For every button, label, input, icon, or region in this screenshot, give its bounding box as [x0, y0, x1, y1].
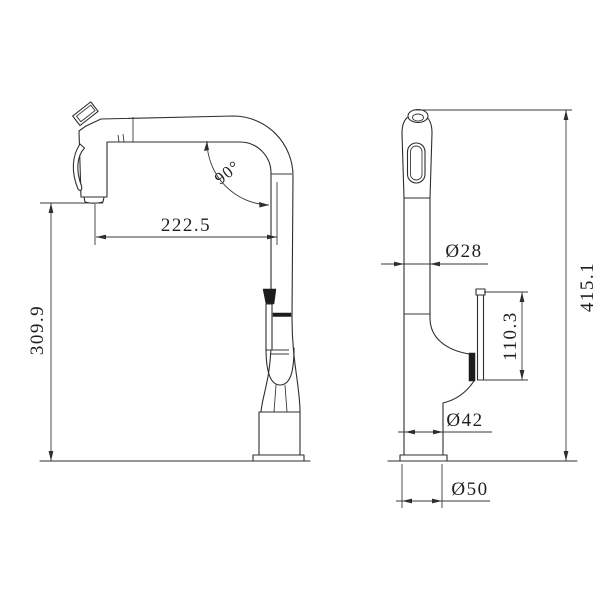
dim-handle-110-3: 110.3 — [477, 292, 528, 380]
spray-outlet-window-inner — [411, 146, 423, 180]
technical-drawing-sheet: 309.9 222.5 90° Ø28 415.1 110. — [0, 0, 600, 600]
side-view — [40, 102, 310, 461]
spray-head-foot — [84, 197, 104, 203]
latch-mark-1 — [118, 135, 119, 142]
base-cylinder-side — [259, 412, 300, 455]
spout-arm-inner — [108, 142, 271, 412]
bulb-silhouette-2 — [285, 385, 287, 412]
handle-rod-side — [266, 304, 272, 350]
dim-dia-28: Ø28 — [381, 241, 488, 266]
dim-label-415-1: 415.1 — [577, 262, 598, 312]
spray-trigger — [73, 144, 84, 190]
dim-height-309-9: 309.9 — [27, 203, 103, 461]
dim-label-dia-42: Ø42 — [446, 410, 483, 431]
dim-dia-50: Ø50 — [396, 464, 490, 508]
front-view — [388, 110, 577, 462]
handle-lever-cap-front — [476, 289, 485, 295]
dim-dia-42: Ø42 — [398, 410, 492, 434]
bulb-silhouette-1 — [274, 385, 276, 412]
latch-mark-2 — [123, 134, 124, 142]
upper-shoulder-front — [430, 318, 469, 354]
dim-reach-222-5: 222.5 — [95, 182, 277, 245]
dim-label-dia-28: Ø28 — [445, 241, 482, 262]
spray-head — [79, 126, 107, 197]
dim-label-222-5: 222.5 — [161, 215, 211, 236]
faucet-dimension-drawing: 309.9 222.5 90° Ø28 415.1 110. — [0, 0, 600, 600]
spray-head-front — [402, 114, 432, 198]
base-flange-front — [400, 455, 447, 461]
dim-label-309-9: 309.9 — [27, 305, 48, 355]
handle-knob-side — [263, 289, 276, 304]
handle-lever-front — [478, 295, 484, 380]
dim-angle-90: 90° — [204, 141, 269, 208]
dim-label-dia-50: Ø50 — [451, 479, 488, 500]
dim-label-90deg: 90° — [211, 157, 244, 188]
base-flange-side — [253, 455, 304, 461]
handle-connector-front — [469, 353, 475, 381]
dim-height-415-1: 415.1 — [413, 110, 598, 461]
handle-pivot-bar — [273, 313, 291, 317]
dim-label-110-3: 110.3 — [500, 311, 521, 361]
